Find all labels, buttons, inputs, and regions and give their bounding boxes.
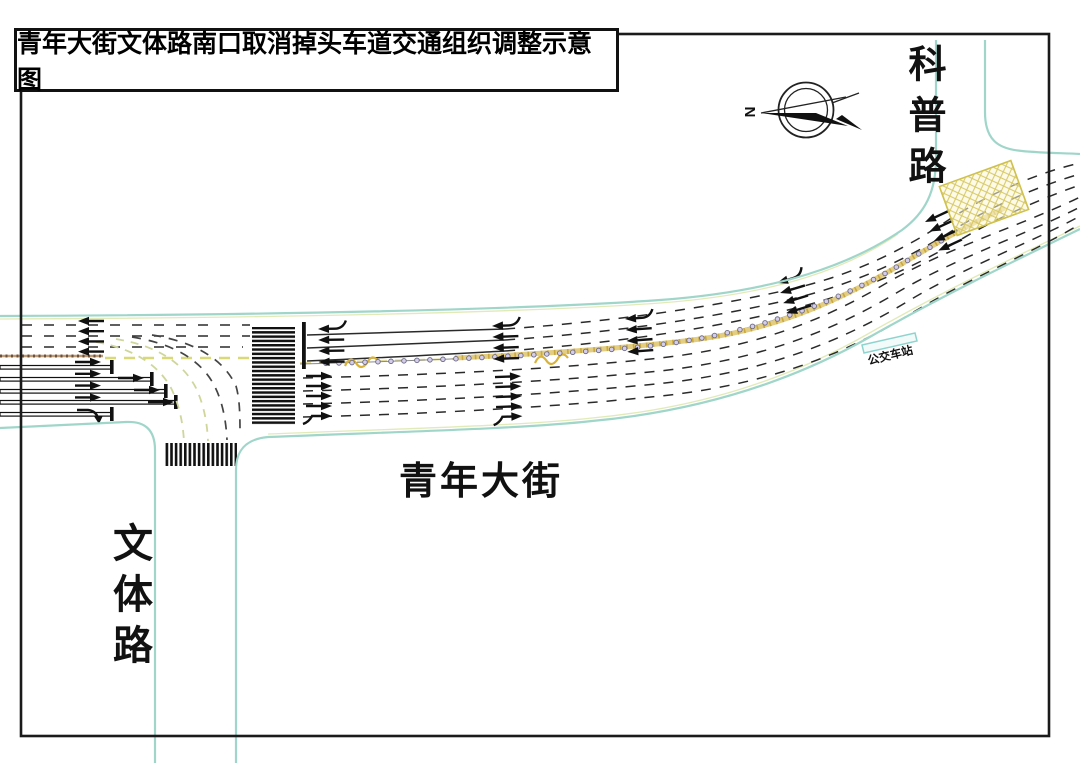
main-road-south-edge-east (236, 229, 1080, 763)
center-yellow-braid (455, 208, 1005, 358)
lane-direction-arrows (75, 207, 964, 425)
title-box: 青年大街文体路南口取消掉头车道交通组织调整示意图 (14, 28, 619, 92)
center-median (0, 208, 1005, 367)
north-road-label: 科普路 (896, 44, 951, 197)
drawing-frame (21, 34, 1049, 736)
diagram-title: 青年大街文体路南口取消掉头车道交通组织调整示意图 (17, 24, 616, 96)
yellow-squiggle-2 (535, 354, 568, 364)
traffic-diagram-page: N 青年大街文体路南口取消掉头车道交通组织调整示意图 青年大街 文体路 科普路 … (0, 0, 1080, 763)
north-arrow-icon: N (742, 83, 862, 138)
uturn-guide-curves (96, 335, 240, 442)
lane-markings (22, 163, 1080, 417)
south-road-label: 文体路 (100, 522, 158, 675)
crosswalk-main-road (252, 327, 295, 425)
compass-n-label: N (742, 107, 759, 118)
main-road-label: 青年大街 (399, 450, 563, 505)
yellow-mesh-zone (939, 161, 1028, 236)
kepu-road-east-edge (985, 40, 1080, 154)
stop-line-westbound (302, 322, 306, 369)
crosswalk-south-road (164, 443, 237, 466)
